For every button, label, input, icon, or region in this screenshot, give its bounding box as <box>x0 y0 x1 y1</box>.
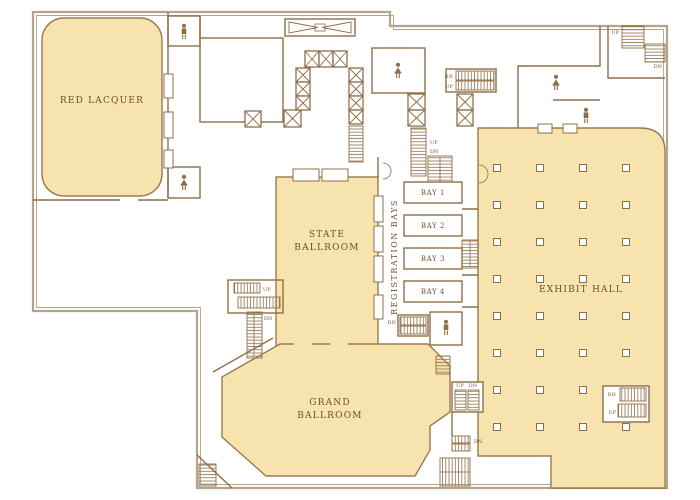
person-legs <box>555 86 558 91</box>
person-legs <box>445 331 448 336</box>
column-marker <box>580 202 587 209</box>
elevator-icon <box>408 94 425 110</box>
person-legs <box>183 35 186 40</box>
entrance <box>285 19 355 36</box>
up-label: UP <box>611 30 619 36</box>
person-body <box>394 67 402 73</box>
stairs-icon <box>622 26 644 48</box>
elevator-icon <box>296 68 310 82</box>
up-label: UP <box>456 383 464 389</box>
door-gap <box>294 341 312 351</box>
tread-stripes <box>456 81 494 90</box>
exhibit-hall-room <box>478 128 665 488</box>
elevator-icon <box>349 68 363 82</box>
elevator-icon <box>296 96 310 110</box>
grand-ballroom-label-line1: GRAND <box>309 398 351 408</box>
stairs-icon <box>455 390 466 410</box>
escalator-icon <box>400 317 426 325</box>
stairs-icon <box>436 356 450 374</box>
elevator-icon <box>284 110 301 127</box>
elevator-banks <box>245 51 473 127</box>
tread-stripes <box>452 436 470 443</box>
door <box>538 124 552 133</box>
registration-desk <box>374 295 383 319</box>
door <box>164 112 173 138</box>
floor-plan: BAY 1 BAY 2 BAY 3 BAY 4 REGISTRATION BAY… <box>0 0 700 500</box>
female-restroom-icon <box>394 63 402 78</box>
bay-1-label: BAY 1 <box>421 189 445 197</box>
escalator-icon <box>400 326 426 334</box>
up-label: UP <box>263 287 271 293</box>
stairs-icon <box>440 458 470 486</box>
registration-desk <box>374 256 383 282</box>
column-marker <box>537 350 544 357</box>
door <box>164 150 173 168</box>
bay-2-label: BAY 2 <box>421 222 445 230</box>
tread-stripes <box>622 26 644 48</box>
column-marker <box>494 350 501 357</box>
up-label: UP <box>430 140 438 146</box>
dn-label: DN <box>474 439 482 445</box>
column-marker <box>537 239 544 246</box>
door <box>563 124 577 133</box>
column-marker <box>580 387 587 394</box>
tread-stripes <box>440 458 470 486</box>
state-ballroom-room <box>276 177 378 347</box>
person-legs <box>183 186 186 191</box>
elevator-icon <box>349 96 363 110</box>
male-restroom-icon <box>584 108 589 123</box>
column-marker <box>623 276 630 283</box>
dn-label: DN <box>469 383 477 389</box>
person-legs <box>585 119 588 124</box>
column-marker <box>537 276 544 283</box>
stairs-icon <box>645 44 665 62</box>
male-restroom-icon <box>182 24 187 39</box>
room-walls <box>200 38 283 122</box>
escalator-icon <box>452 436 470 443</box>
column-marker <box>580 165 587 172</box>
stairs-icon <box>199 464 216 486</box>
bay-3-label: BAY 3 <box>421 255 445 263</box>
person-head <box>584 108 588 112</box>
elevator-icon <box>457 110 473 126</box>
tread-stripes <box>238 297 280 308</box>
column-marker <box>537 202 544 209</box>
exhibit-hall-label: EXHIBIT HALL <box>539 285 623 295</box>
red-lacquer-room <box>42 18 162 196</box>
person-head <box>554 75 558 79</box>
tread-stripes <box>468 390 479 410</box>
door <box>322 169 348 181</box>
entrance-canopy <box>285 19 355 36</box>
person-body <box>584 112 589 118</box>
column-marker <box>623 313 630 320</box>
door <box>293 169 319 181</box>
column-marker <box>494 239 501 246</box>
escalator-icon <box>456 81 494 90</box>
female-restroom-icon <box>180 175 188 190</box>
person-body <box>444 324 449 330</box>
grand-ballroom-floor <box>222 344 450 476</box>
dn-label: DN <box>388 320 396 326</box>
stairs-icon <box>620 388 646 401</box>
elevator-icon <box>457 94 473 110</box>
tread-stripes <box>452 444 470 451</box>
state-ballroom-label-line2: BALLROOM <box>294 243 359 253</box>
registration-desk <box>374 226 383 252</box>
escalator-icon <box>411 128 426 176</box>
tread-stripes <box>247 312 262 358</box>
female-restroom-icon <box>552 75 560 90</box>
column-marker <box>623 165 630 172</box>
column-marker <box>494 424 501 431</box>
red-lacquer-floor <box>42 18 162 196</box>
elevator-icon <box>349 82 363 96</box>
person-legs <box>397 74 400 79</box>
elevator-icon <box>245 111 261 127</box>
column-marker <box>494 165 501 172</box>
stairs-icon <box>462 240 478 268</box>
escalator-icon <box>234 283 260 293</box>
column-marker <box>537 387 544 394</box>
registration-desk <box>374 196 383 222</box>
up-label: UP <box>608 410 616 416</box>
column-marker <box>623 350 630 357</box>
tread-stripes <box>462 240 478 268</box>
exhibit-hall-floor <box>478 128 665 488</box>
column-marker <box>537 313 544 320</box>
red-lacquer-label: RED LACQUER <box>60 96 144 106</box>
dn-label: DN <box>445 74 453 80</box>
tread-stripes <box>620 388 646 401</box>
up-label: UP <box>445 84 453 90</box>
column-marker <box>623 239 630 246</box>
column-marker <box>537 165 544 172</box>
column-marker <box>494 313 501 320</box>
column-marker <box>494 276 501 283</box>
stairs-icon <box>428 156 452 184</box>
column-marker <box>580 350 587 357</box>
dn-label: DN <box>430 149 438 155</box>
tread-stripes <box>349 126 363 162</box>
tread-stripes <box>456 71 494 80</box>
column-marker <box>494 387 501 394</box>
elevator-icon <box>408 110 425 126</box>
dn-label: DN <box>654 64 662 70</box>
tread-stripes <box>411 128 426 176</box>
person-head <box>182 175 186 179</box>
door-gap <box>330 341 348 351</box>
tread-stripes <box>645 44 665 62</box>
state-ballroom-floor <box>276 177 378 347</box>
escalator-icon <box>456 71 494 80</box>
grand-ballroom-room <box>222 344 450 476</box>
escalator-icon <box>349 126 363 162</box>
tread-stripes <box>428 156 452 184</box>
tread-stripes <box>436 356 450 374</box>
tread-stripes <box>400 317 426 325</box>
column-marker <box>580 276 587 283</box>
column-marker <box>623 424 630 431</box>
column-marker <box>580 424 587 431</box>
person-body <box>552 79 560 85</box>
stairs-icon <box>618 404 646 417</box>
dn-label: DN <box>608 392 616 398</box>
tread-stripes <box>455 390 466 410</box>
elevator-icon <box>333 51 347 67</box>
tread-stripes <box>400 326 426 334</box>
bay-4-label: BAY 4 <box>421 288 445 296</box>
door-swing-arc <box>383 163 391 179</box>
floor-plan-page: BAY 1 BAY 2 BAY 3 BAY 4 REGISTRATION BAY… <box>0 0 700 500</box>
tread-stripes <box>234 283 260 293</box>
column-marker <box>623 202 630 209</box>
elevator-icon <box>319 51 333 67</box>
person-head <box>396 63 400 67</box>
escalator-icon <box>238 297 280 308</box>
person-body <box>180 179 188 185</box>
registration-bays: BAY 1 BAY 2 BAY 3 BAY 4 REGISTRATION BAY… <box>390 182 462 315</box>
grand-ballroom-label-line2: BALLROOM <box>297 411 362 421</box>
person-head <box>182 24 186 28</box>
escalator-icon <box>452 444 470 451</box>
state-ballroom-label-line1: STATE <box>309 230 345 240</box>
person-body <box>182 28 187 34</box>
elevator-icon <box>305 51 319 67</box>
tread-stripes <box>618 404 646 417</box>
column-marker <box>537 424 544 431</box>
elevator-icon <box>349 110 363 124</box>
column-marker <box>580 313 587 320</box>
male-restroom-icon <box>444 320 449 335</box>
door <box>164 74 173 98</box>
tread-stripes <box>199 464 216 486</box>
person-head <box>444 320 448 324</box>
column-marker <box>580 239 587 246</box>
column-marker <box>494 202 501 209</box>
elevator-icon <box>296 82 310 96</box>
stairs-icon <box>247 312 262 358</box>
stairs-icon <box>468 390 479 410</box>
registration-bays-label: REGISTRATION BAYS <box>390 199 399 315</box>
dn-label: DN <box>264 316 272 322</box>
